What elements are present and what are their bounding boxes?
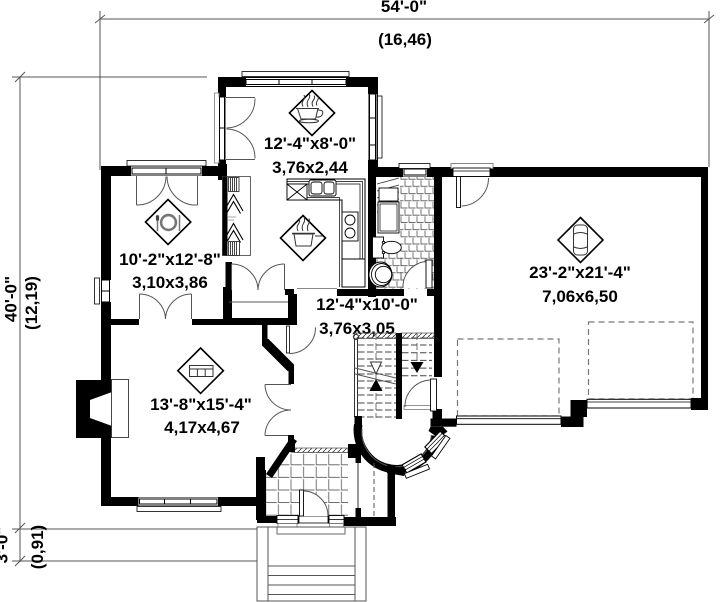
svg-text:3,10x3,86: 3,10x3,86 [132, 273, 208, 292]
svg-text:40'-0": 40'-0" [2, 276, 21, 322]
svg-text:23'-2"x21'-4": 23'-2"x21'-4" [529, 263, 631, 282]
svg-text:3'-0": 3'-0" [0, 527, 12, 564]
svg-text:4,17x4,67: 4,17x4,67 [164, 418, 240, 437]
svg-text:3,76x2,44: 3,76x2,44 [272, 158, 348, 177]
svg-text:13'-8"x15'-4": 13'-8"x15'-4" [150, 395, 252, 414]
svg-text:54'-0": 54'-0" [381, 0, 427, 16]
svg-text:(12,19): (12,19) [22, 276, 41, 330]
svg-text:12'-4"x10'-0": 12'-4"x10'-0" [316, 295, 418, 314]
svg-text:(0,91): (0,91) [28, 525, 47, 569]
svg-text:10'-2"x12'-8": 10'-2"x12'-8" [119, 250, 221, 269]
svg-text:(16,46): (16,46) [378, 30, 432, 49]
svg-text:7,06x6,50: 7,06x6,50 [542, 287, 618, 306]
svg-text:12'-4"x8'-0": 12'-4"x8'-0" [264, 134, 356, 153]
